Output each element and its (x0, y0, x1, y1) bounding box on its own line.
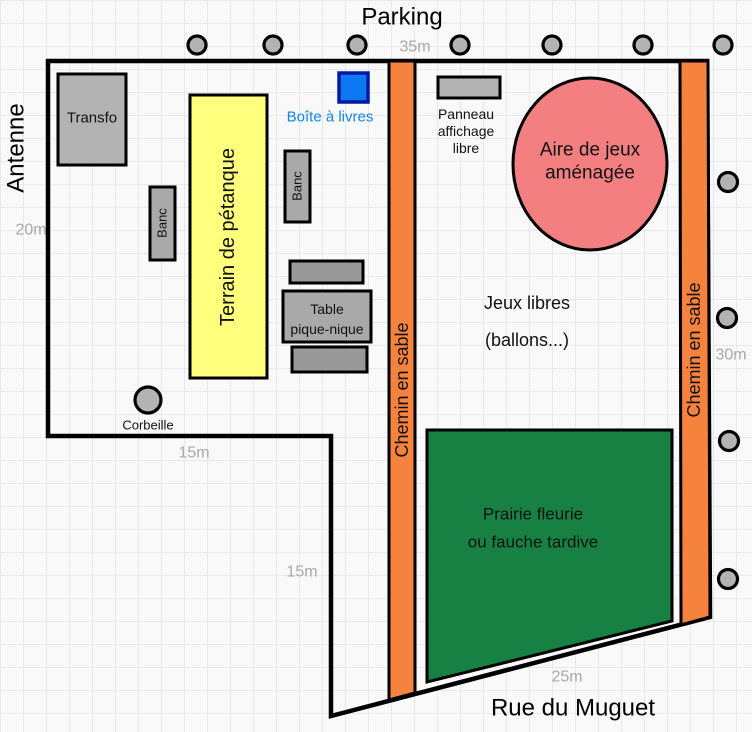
picnic-bench-top (290, 261, 363, 283)
picnic-table-label-line2: pique-nique (290, 321, 363, 337)
petanque-label: Terrain de pétanque (217, 148, 239, 326)
antenne-title: Antenne (3, 103, 30, 192)
dim-right: 30m (715, 347, 746, 364)
notice-board-label-line1: Panneau (438, 106, 494, 122)
tree-marker (264, 36, 282, 54)
shrub-marker (718, 309, 737, 328)
playground-label-line2: aménagée (545, 163, 635, 184)
parking-title: Parking (361, 4, 442, 31)
picnic-table-label-line1: Table (310, 301, 344, 317)
prairie-label-line1: Prairie fleurie (483, 505, 583, 524)
trash-bin-marker (135, 387, 161, 413)
park-plan-drawing: Parking Antenne Rue du Muguet 35m 20m 30… (0, 0, 752, 732)
tree-marker (451, 36, 469, 54)
shrub-marker (719, 173, 738, 192)
shrub-marker (720, 432, 739, 451)
playground-label-line1: Aire de jeux (540, 140, 641, 161)
dim-left: 20m (15, 222, 46, 239)
prairie-label-line2: ou fauche tardive (468, 533, 598, 552)
dim-inner-south: 15m (286, 564, 317, 581)
book-box-label: Boîte à livres (287, 109, 374, 126)
notice-board-label-line2: affichage (438, 123, 495, 139)
tree-marker (634, 36, 652, 54)
shrub-marker (719, 570, 738, 589)
notice-board (438, 77, 500, 98)
dim-inner-west: 15m (178, 445, 209, 462)
notice-board-label-line3: libre (453, 140, 480, 156)
dim-top: 35m (399, 39, 430, 56)
tree-marker (714, 36, 732, 54)
picnic-bench-bottom (292, 347, 367, 372)
book-box (339, 73, 368, 102)
transformer-label: Transfo (67, 110, 117, 127)
sand-path-west-label: Chemin en sable (392, 322, 412, 457)
trash-bin-label: Corbeille (122, 418, 173, 433)
bench-east-label: Banc (290, 171, 305, 201)
prairie-zone (427, 430, 672, 682)
dim-road: 25m (551, 669, 582, 686)
sand-path-east-label: Chemin en sable (684, 282, 704, 417)
parking-tree-row (188, 36, 732, 54)
free-games-label-line1: Jeux libres (484, 293, 570, 313)
east-shrub-column (718, 173, 739, 589)
tree-marker (543, 36, 561, 54)
park-plan-canvas: Parking Antenne Rue du Muguet 35m 20m 30… (0, 0, 752, 732)
tree-marker (348, 36, 366, 54)
street-title: Rue du Muguet (491, 695, 655, 722)
free-games-label-line2: (ballons...) (485, 330, 569, 350)
tree-marker (188, 36, 206, 54)
bench-west-label: Banc (155, 208, 170, 238)
